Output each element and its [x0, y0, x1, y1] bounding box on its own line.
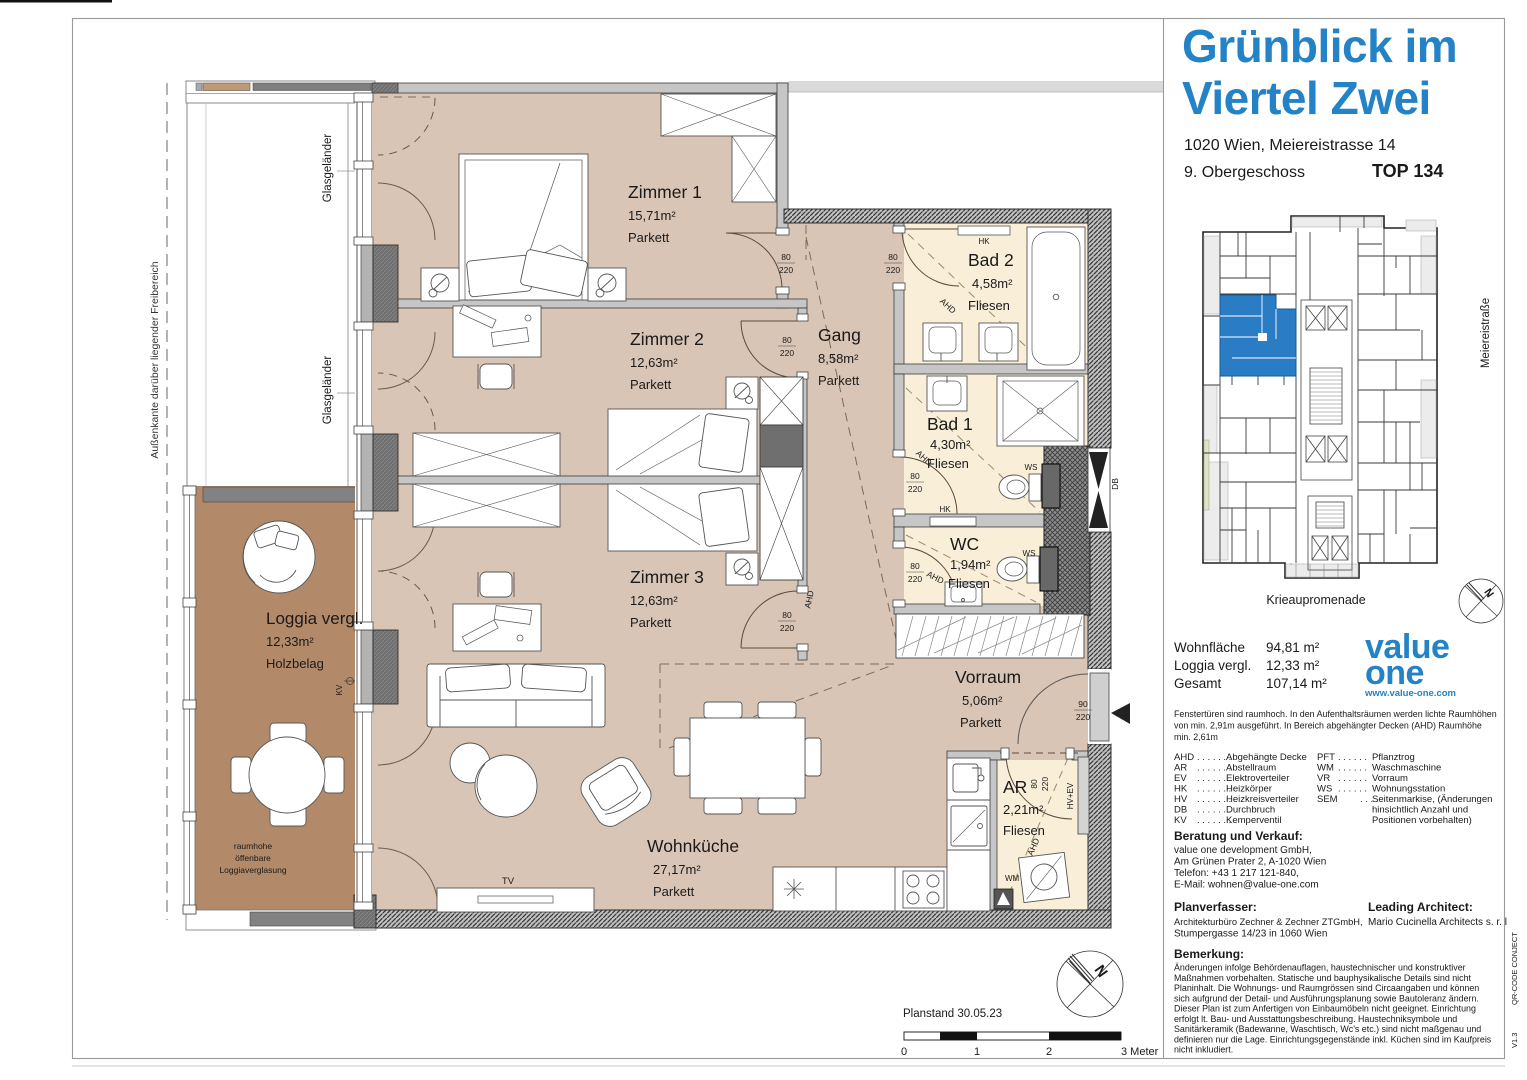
- svg-text:27,17m²: 27,17m²: [653, 862, 701, 877]
- svg-text:Parkett: Parkett: [653, 884, 695, 899]
- svg-text:erfolgt lt. Bau- und Ausstattu: erfolgt lt. Bau- und Ausstattungsbeschre…: [1174, 1014, 1457, 1024]
- svg-text:nicht inkludiert.: nicht inkludiert.: [1174, 1045, 1233, 1055]
- svg-text:Architekturbüro Zechner & Zech: Architekturbüro Zechner & Zechner ZTGmbH…: [1174, 917, 1363, 927]
- svg-text:EV: EV: [1174, 773, 1187, 784]
- svg-text:Heizkreisverteiler: Heizkreisverteiler: [1226, 794, 1299, 805]
- svg-text:Telefon: +43 1 217 121-840,: Telefon: +43 1 217 121-840,: [1174, 868, 1299, 879]
- svg-text:VR: VR: [1317, 773, 1330, 784]
- svg-text:Am Grünen Prater 2, A-1020 Wie: Am Grünen Prater 2, A-1020 Wien: [1174, 857, 1326, 868]
- svg-text:Gesamt: Gesamt: [1174, 676, 1222, 691]
- svg-text:WS: WS: [1025, 463, 1038, 472]
- svg-text:80: 80: [781, 252, 791, 262]
- svg-text:Fliesen: Fliesen: [948, 576, 990, 591]
- svg-text:HK: HK: [1174, 784, 1188, 795]
- svg-text:0: 0: [901, 1046, 907, 1058]
- svg-text:value one development GmbH,: value one development GmbH,: [1174, 845, 1312, 856]
- svg-text:Krieaupromenade: Krieaupromenade: [1266, 593, 1365, 607]
- svg-text:. . . . . .: . . . . . .: [1338, 773, 1367, 784]
- svg-text:Zimmer 3: Zimmer 3: [630, 567, 704, 587]
- svg-text:5,06m²: 5,06m²: [962, 693, 1003, 708]
- svg-text:Heizkörper: Heizkörper: [1226, 784, 1272, 795]
- svg-text:3 Meter: 3 Meter: [1121, 1046, 1159, 1058]
- svg-text:Seitenmarkise, (Änderungen: Seitenmarkise, (Änderungen: [1372, 794, 1492, 805]
- svg-text:Planinhalt. Die Wohnungs- und: Planinhalt. Die Wohnungs- und Raumgrösse…: [1174, 983, 1479, 993]
- svg-text:80: 80: [1029, 779, 1039, 789]
- svg-text:9. Obergeschoss: 9. Obergeschoss: [1184, 164, 1305, 181]
- svg-text:Planstand 30.05.23: Planstand 30.05.23: [903, 1008, 1002, 1020]
- svg-text:Loggiaverglasung: Loggiaverglasung: [219, 865, 286, 875]
- svg-text:Parkett: Parkett: [630, 615, 672, 630]
- svg-text:Durchbruch: Durchbruch: [1226, 805, 1275, 816]
- svg-text:Viertel Zwei: Viertel Zwei: [1182, 72, 1431, 124]
- svg-text:min. 2,61m: min. 2,61m: [1174, 732, 1218, 742]
- svg-text:öffenbare: öffenbare: [235, 853, 271, 863]
- svg-text:AHD: AHD: [1174, 752, 1194, 763]
- svg-text:Kemperventil: Kemperventil: [1226, 815, 1281, 826]
- svg-text:Gang: Gang: [818, 325, 861, 345]
- svg-text:WC: WC: [950, 534, 979, 554]
- svg-text:12,63m²: 12,63m²: [630, 593, 678, 608]
- svg-text:HV+EV: HV+EV: [1066, 782, 1075, 809]
- svg-text:WS: WS: [1023, 549, 1036, 558]
- svg-text:Mario Cucinella Architects s.: Mario Cucinella Architects s. r. l: [1368, 917, 1507, 928]
- svg-text:AR: AR: [1003, 777, 1027, 797]
- svg-text:220: 220: [780, 623, 794, 633]
- svg-text:15,71m²: 15,71m²: [628, 208, 676, 223]
- svg-text:DB: DB: [1110, 478, 1120, 490]
- svg-text:80: 80: [910, 471, 920, 481]
- svg-text:Sanitärkeramik (Badewanne, Was: Sanitärkeramik (Badewanne, Waschtisch, W…: [1174, 1024, 1481, 1034]
- svg-text:KV: KV: [335, 684, 344, 695]
- svg-text:Parkett: Parkett: [628, 230, 670, 245]
- svg-text:94,81 m²: 94,81 m²: [1266, 640, 1320, 655]
- svg-text:220: 220: [908, 574, 922, 584]
- svg-text:Wohnfläche: Wohnfläche: [1174, 640, 1245, 655]
- svg-text:8,58m²: 8,58m²: [818, 351, 859, 366]
- svg-text:Parkett: Parkett: [960, 715, 1002, 730]
- svg-text:Abgehängte Decke: Abgehängte Decke: [1226, 752, 1307, 763]
- svg-text:Vorraum: Vorraum: [955, 667, 1021, 687]
- svg-text:Stumpergasse 14/23 in 1060 Wie: Stumpergasse 14/23 in 1060 Wien: [1174, 929, 1327, 940]
- svg-text:HK: HK: [939, 505, 951, 514]
- svg-text:Holzbelag: Holzbelag: [266, 656, 324, 671]
- svg-text:220: 220: [779, 265, 793, 275]
- svg-text:Bad 1: Bad 1: [927, 414, 973, 434]
- svg-text:1: 1: [974, 1046, 980, 1058]
- svg-text:Wohnküche: Wohnküche: [647, 836, 739, 856]
- svg-text:hinsichtlich Anzahl und: hinsichtlich Anzahl und: [1372, 805, 1468, 816]
- svg-text:WS: WS: [1317, 784, 1332, 795]
- svg-text:4,58m²: 4,58m²: [972, 276, 1013, 291]
- svg-text:Pflanztrog: Pflanztrog: [1372, 752, 1415, 763]
- svg-text:HV: HV: [1174, 794, 1188, 805]
- svg-text:V1.3: V1.3: [1510, 1033, 1519, 1048]
- svg-text:1,94m²: 1,94m²: [950, 557, 991, 572]
- svg-text:220: 220: [886, 265, 900, 275]
- svg-text:Maßnahmen vorbehalten. Statisc: Maßnahmen vorbehalten. Statische und bau…: [1174, 973, 1472, 983]
- svg-text:Planverfasser:: Planverfasser:: [1174, 900, 1257, 914]
- svg-text:Dieser Plan ist zum Anfertigen: Dieser Plan ist zum Anfertigen von Einba…: [1174, 1004, 1476, 1014]
- svg-text:220: 220: [780, 348, 794, 358]
- svg-text:Beratung und Verkauf:: Beratung und Verkauf:: [1174, 829, 1303, 843]
- svg-text:80: 80: [782, 610, 792, 620]
- svg-text:Zimmer 1: Zimmer 1: [628, 182, 702, 202]
- svg-text:Fliesen: Fliesen: [1003, 823, 1045, 838]
- svg-text:sich aufgrund der Detail- und: sich aufgrund der Detail- und Ausführung…: [1174, 993, 1479, 1003]
- svg-text:Loggia vergl.: Loggia vergl.: [1174, 658, 1251, 673]
- svg-text:Abstellraum: Abstellraum: [1226, 763, 1276, 774]
- svg-text:Glasgeländer: Glasgeländer: [322, 356, 334, 425]
- svg-text:220: 220: [908, 484, 922, 494]
- svg-text:. . . . . .: . . . . . .: [1338, 763, 1367, 774]
- svg-text:80: 80: [910, 561, 920, 571]
- svg-text:107,14 m²: 107,14 m²: [1266, 676, 1327, 691]
- svg-text:Parkett: Parkett: [818, 373, 860, 388]
- svg-text:www.value-one.com: www.value-one.com: [1364, 688, 1456, 699]
- svg-text:AR: AR: [1174, 763, 1187, 774]
- svg-text:Fliesen: Fliesen: [968, 298, 1010, 313]
- svg-text:Zimmer 2: Zimmer 2: [630, 329, 704, 349]
- svg-text:TOP 134: TOP 134: [1372, 161, 1443, 181]
- svg-text:Änderungen infolge Behördenauf: Änderungen infolge Behördenauflagen, hau…: [1174, 963, 1466, 973]
- svg-text:220: 220: [1040, 777, 1050, 791]
- svg-text:Bad 2: Bad 2: [968, 250, 1014, 270]
- svg-text:12,33m²: 12,33m²: [266, 634, 314, 649]
- svg-text:1020 Wien, Meiereistrasse 14: 1020 Wien, Meiereistrasse 14: [1184, 137, 1396, 154]
- svg-text:Fliesen: Fliesen: [927, 456, 969, 471]
- svg-text:Wohnungsstation: Wohnungsstation: [1372, 784, 1445, 795]
- svg-text:Loggia vergl.: Loggia vergl.: [266, 609, 363, 628]
- svg-text:von min. 2,91m ausgeführt. In: von min. 2,91m ausgeführt. In Bereich ab…: [1174, 721, 1482, 731]
- svg-text:DB: DB: [1174, 805, 1187, 816]
- svg-text:90: 90: [1078, 699, 1088, 709]
- svg-text:WM: WM: [1005, 874, 1020, 883]
- svg-text:. . . . . .: . . . . . .: [1338, 784, 1367, 795]
- svg-text:definieren nur die Lage. Einri: definieren nur die Lage. Einrichtungsgeg…: [1174, 1034, 1492, 1044]
- svg-text:E-Mail: wohnen@value-one.com: E-Mail: wohnen@value-one.com: [1174, 880, 1319, 891]
- svg-text:Glasgeländer: Glasgeländer: [322, 134, 334, 203]
- svg-text:Parkett: Parkett: [630, 377, 672, 392]
- svg-text:KV: KV: [1174, 815, 1187, 826]
- svg-text:2,21m²: 2,21m²: [1003, 802, 1044, 817]
- svg-text:WM: WM: [1317, 763, 1334, 774]
- svg-text:Leading Architect:: Leading Architect:: [1368, 900, 1473, 914]
- svg-text:Meiereistraße: Meiereistraße: [1480, 298, 1492, 368]
- svg-text:. . . . . .: . . . . . .: [1338, 752, 1367, 763]
- svg-text:QR-CODE CONJECT: QR-CODE CONJECT: [1510, 932, 1519, 1005]
- svg-text:4,30m²: 4,30m²: [930, 437, 971, 452]
- svg-text:12,63m²: 12,63m²: [630, 355, 678, 370]
- svg-text:raumhohe: raumhohe: [234, 841, 273, 851]
- svg-text:2: 2: [1046, 1046, 1052, 1058]
- svg-text:HK: HK: [978, 237, 990, 246]
- svg-text:Bemerkung:: Bemerkung:: [1174, 947, 1244, 961]
- svg-text:Außenkante darüber liegender F: Außenkante darüber liegender Freibereich: [149, 261, 161, 458]
- svg-text:Elektroverteiler: Elektroverteiler: [1226, 773, 1289, 784]
- svg-text:80: 80: [888, 252, 898, 262]
- svg-text:TV: TV: [502, 876, 515, 887]
- svg-text:220: 220: [1076, 712, 1090, 722]
- svg-text:Waschmaschine: Waschmaschine: [1372, 763, 1441, 774]
- svg-text:Fenstertüren sind raumhoch. In: Fenstertüren sind raumhoch. In den Aufen…: [1174, 709, 1497, 719]
- svg-text:Grünblick im: Grünblick im: [1182, 20, 1457, 72]
- svg-text:one: one: [1365, 654, 1424, 692]
- svg-text:Positionen vorbehalten): Positionen vorbehalten): [1372, 815, 1472, 826]
- svg-text:PFT: PFT: [1317, 752, 1335, 763]
- svg-text:80: 80: [782, 335, 792, 345]
- svg-text:Vorraum: Vorraum: [1372, 773, 1408, 784]
- svg-text:12,33 m²: 12,33 m²: [1266, 658, 1320, 673]
- svg-text:SEM: SEM: [1317, 794, 1338, 805]
